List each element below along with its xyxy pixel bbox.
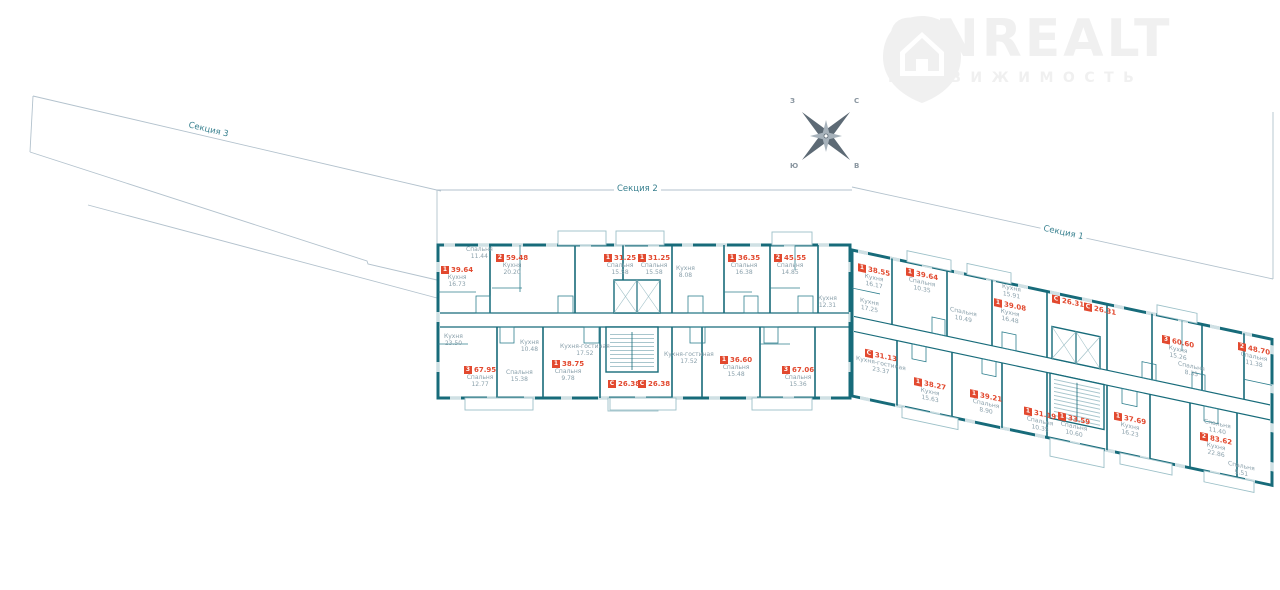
unit-badge: 367.95 Спальня12.77 — [464, 366, 496, 388]
unit-badge: 248.70 Спальня11.38 — [1238, 342, 1270, 371]
compass-south-label: Ю — [790, 162, 798, 170]
compass-east-label: В — [854, 162, 859, 170]
unit-badge: 138.27 Кухня15.63 — [914, 377, 946, 406]
room-label: Кухня-гостиная17.52 — [560, 344, 610, 358]
room-label: Кухня8.08 — [676, 266, 695, 280]
room-label: Кухня17.25 — [860, 298, 879, 316]
unit-badge: С26.38 — [638, 380, 670, 388]
unit-badge: С26.31 — [1084, 302, 1116, 317]
unit-badge: С26.38 — [608, 380, 640, 388]
unit-badge: 131.19 Спальня10.35 — [1024, 407, 1056, 436]
unit-badge: 367.06 Спальня15.36 — [782, 366, 814, 388]
unit-badge: 136.35 Спальня16.38 — [728, 254, 760, 276]
unit-rooms: 1 — [441, 266, 449, 274]
room-label: Спальня9.51 — [1228, 461, 1255, 480]
unit-badge: 138.55 Кухня16.17 — [858, 263, 890, 292]
unit-badge: 139.64 Спальня10.35 — [906, 267, 938, 296]
floor-plan-page: ONREALT НЕДВИЖИМОСТЬ — [0, 0, 1280, 590]
room-label: Кухня12.31 — [818, 296, 837, 310]
room-label: Кухня15.91 — [1002, 284, 1021, 302]
unit-badge: 259.48 Кухня20.20 — [496, 254, 528, 276]
unit-badge: 138.75 Спальня9.78 — [552, 360, 584, 382]
room-label: Кухня10.48 — [520, 340, 539, 354]
unit-badge: 137.69 Кухня16.23 — [1114, 412, 1146, 441]
unit-area: 39.64 — [451, 267, 473, 274]
room-label: Кухня-гостиная17.52 — [664, 352, 714, 366]
unit-badge: 245.55 Спальня14.85 — [774, 254, 806, 276]
compass-north-label: С — [854, 97, 859, 105]
unit-badge: С26.31 — [1052, 295, 1084, 310]
unit-badge: 139.08 Кухня16.48 — [994, 298, 1026, 327]
room-label: Спальня15.38 — [506, 370, 533, 384]
unit-badge: 136.60 Спальня15.48 — [720, 356, 752, 378]
room-label: Кухня23.50 — [444, 334, 463, 348]
elevator-shaft — [614, 280, 660, 313]
compass-west-label: З — [790, 97, 795, 105]
section2-label: Секция 2 — [614, 184, 661, 194]
room-label: Спальня8.35 — [1178, 361, 1205, 380]
unit-badge: 139.64 Кухня16.73 — [441, 266, 473, 288]
unit-badge: 131.25 Спальня15.58 — [604, 254, 636, 276]
unit-badge: С31.13 Кухня-гостиная23.37 — [856, 347, 906, 380]
unit-badge: 131.25 Спальня15.58 — [638, 254, 670, 276]
unit-badge: 133.59 Спальня10.60 — [1058, 412, 1090, 441]
room-label: Спальня11.44 — [466, 247, 493, 261]
room-label: Спальня10.49 — [950, 307, 977, 326]
unit-badge: 360.60 Кухня15.26 — [1162, 335, 1194, 364]
unit-badge: 139.21 Спальня8.90 — [970, 389, 1002, 418]
